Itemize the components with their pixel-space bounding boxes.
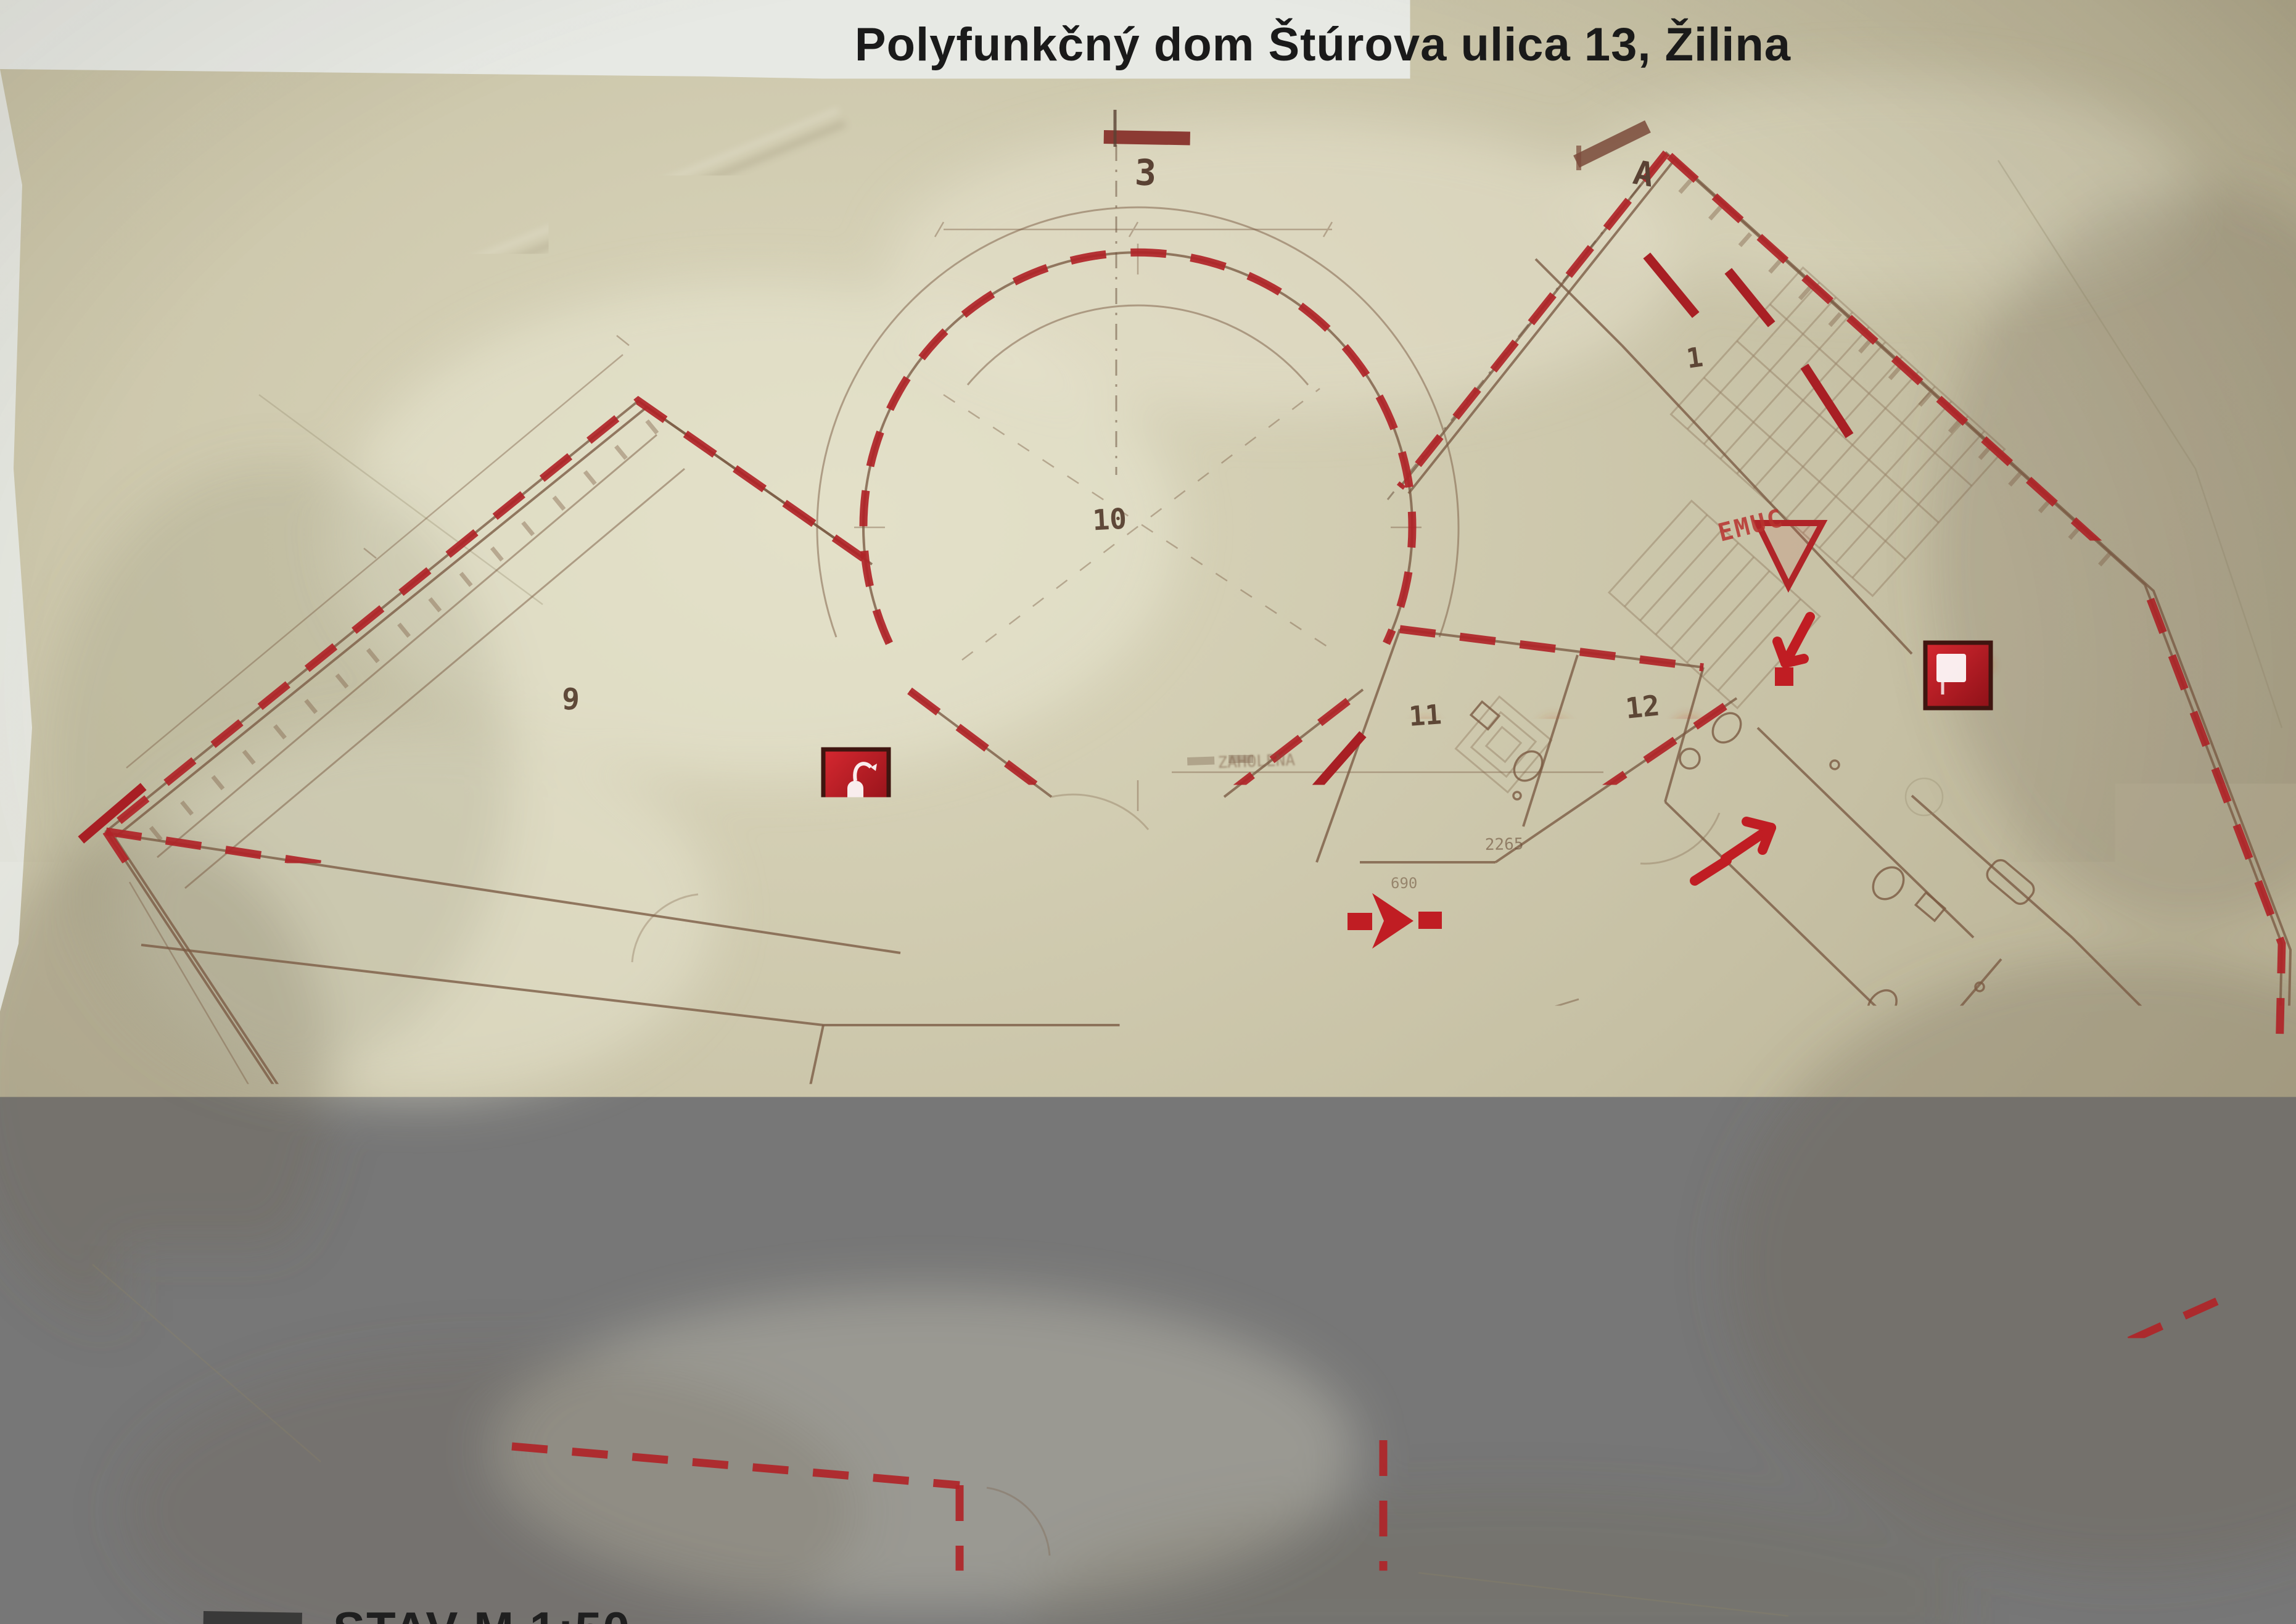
floor-plan-photo: Polyfunkčný dom Štúrova ulica 13, Žilina… — [0, 0, 2296, 1624]
photo-vignette — [0, 0, 2296, 1624]
